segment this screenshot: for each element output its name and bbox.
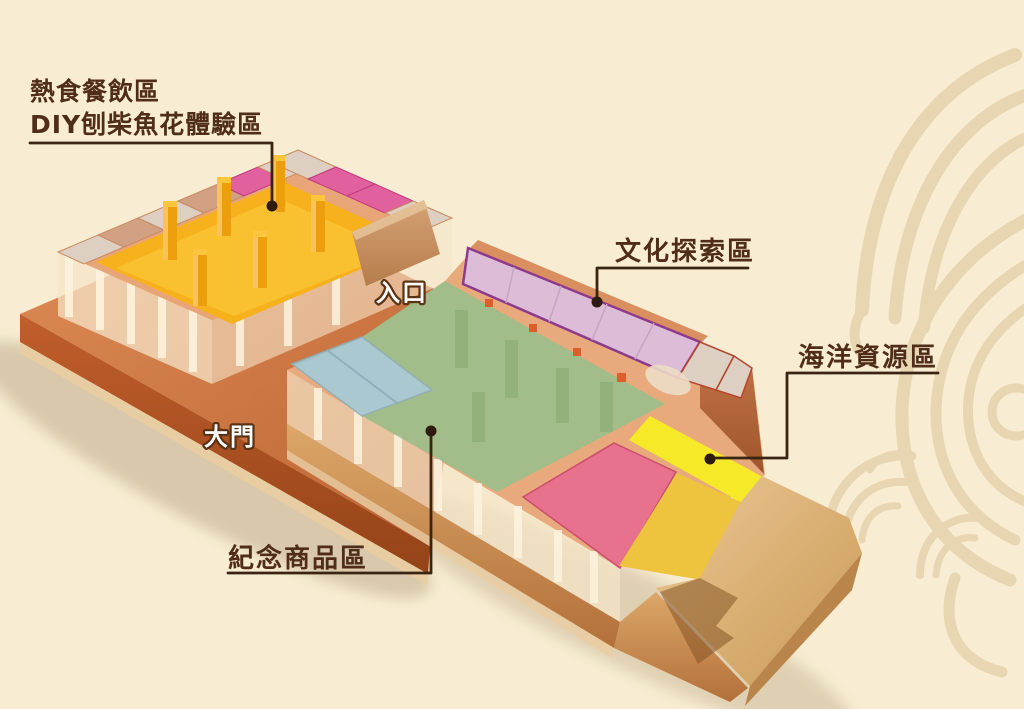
dot-culture — [592, 297, 603, 308]
dot-souvenir — [426, 426, 437, 437]
label-souvenir: 紀念商品區 — [228, 543, 368, 574]
guide-map-canvas: 熱食餐飲區 DIY刨柴魚花體驗區 文化探索區 海洋資源區 紀念商品區 入口 大門 — [0, 0, 1024, 709]
label-hot-food: 熱食餐飲區 — [30, 77, 160, 106]
label-entrance: 入口 — [376, 279, 428, 307]
dot-hot-food — [267, 201, 278, 212]
label-diy: DIY刨柴魚花體驗區 — [30, 110, 263, 139]
label-main-gate: 大門 — [204, 423, 256, 451]
label-marine: 海洋資源區 — [798, 342, 938, 373]
label-culture: 文化探索區 — [615, 236, 755, 267]
dot-marine — [705, 454, 716, 465]
